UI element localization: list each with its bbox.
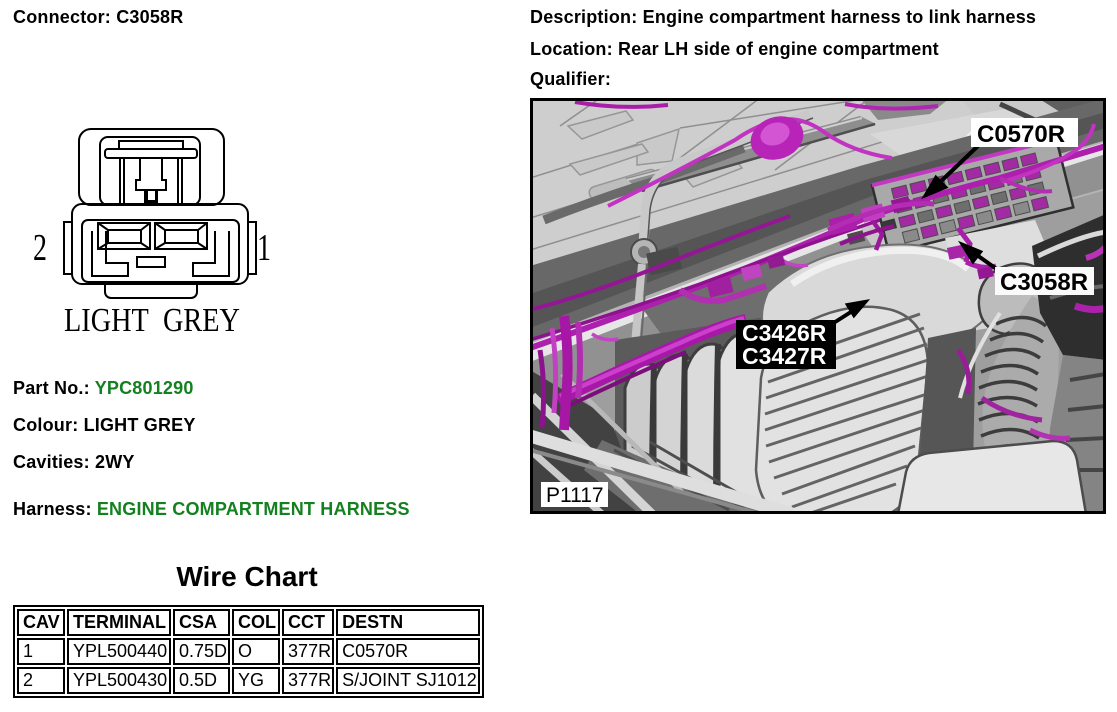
svg-text:2: 2: [33, 227, 47, 269]
svg-text:C3427R: C3427R: [742, 343, 827, 369]
svg-text:1: 1: [257, 227, 271, 269]
svg-text:C0570R: C0570R: [977, 121, 1065, 148]
svg-text:C3058R: C3058R: [1000, 269, 1088, 296]
svg-text:LIGHT GREY: LIGHT GREY: [64, 302, 240, 339]
svg-text:P1117: P1117: [546, 484, 604, 507]
